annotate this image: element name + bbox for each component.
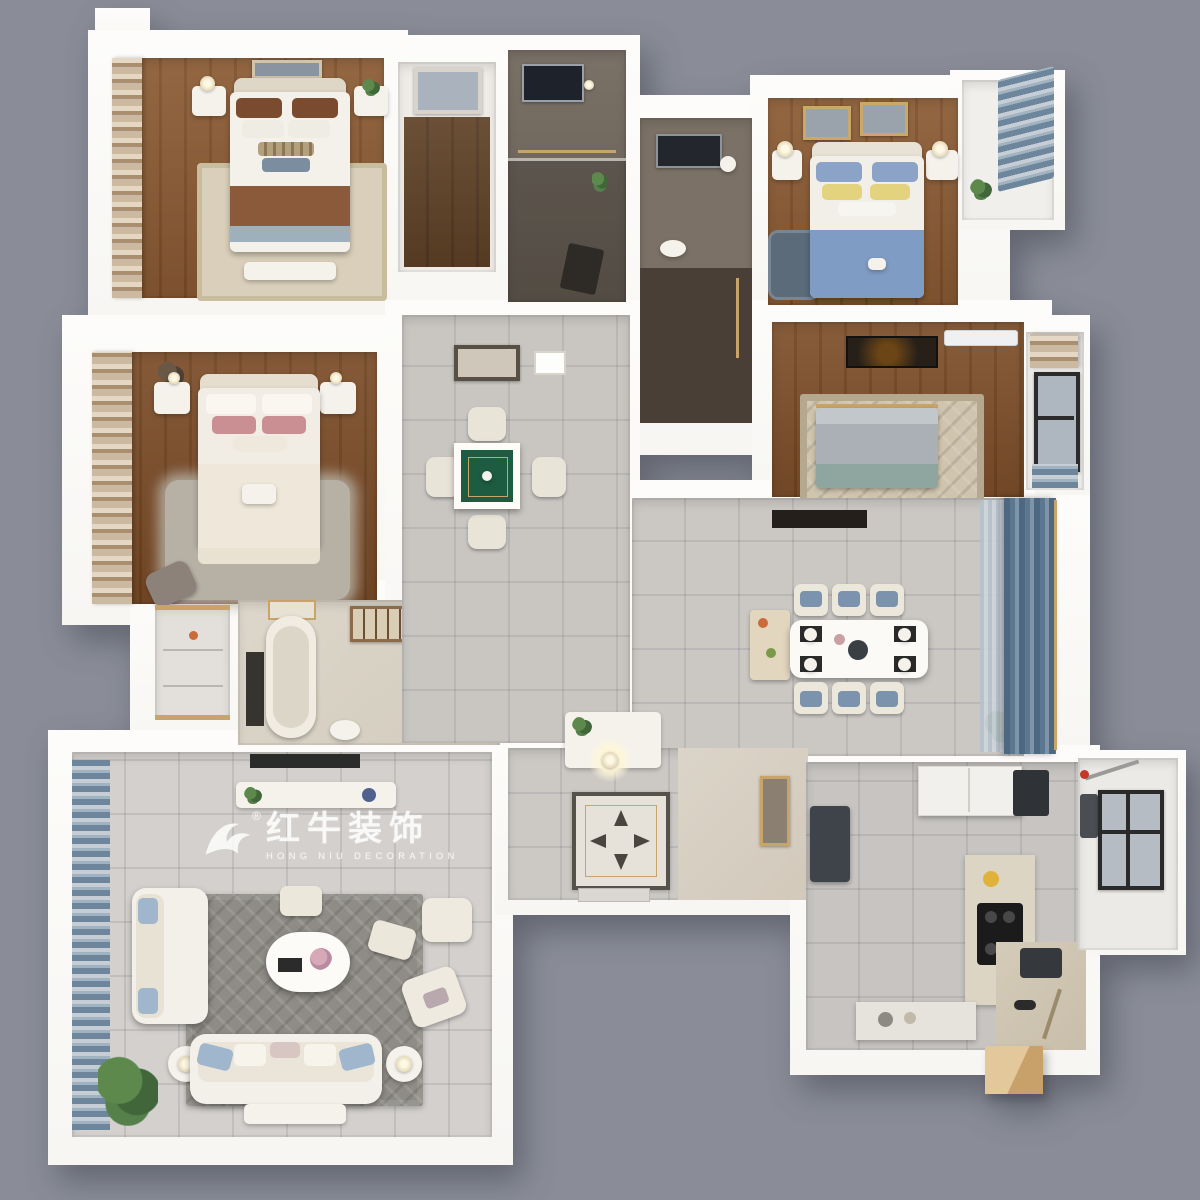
foyer-leaning-picture	[760, 776, 790, 846]
hongniu-logo-icon: ®	[200, 813, 256, 861]
kitchen-fridge	[810, 806, 850, 882]
bedroom2-bay-curtain	[998, 66, 1054, 192]
dining-centerpiece	[848, 640, 868, 660]
bedroom4-breakfast-tray	[242, 484, 276, 504]
hall-wall-art	[454, 345, 520, 381]
dining-chair-cushion	[876, 691, 898, 707]
bedroom2-open-book	[868, 258, 886, 270]
balcony-broom-tip	[1080, 770, 1089, 779]
dining-serving-cart	[750, 610, 790, 680]
mahjong-chair-bottom	[468, 515, 506, 549]
living-ottoman-top	[280, 886, 322, 916]
foyer-medallion-arrow-s	[614, 854, 628, 870]
bath3-window	[350, 606, 406, 642]
brand-name-english: HONG NIU DECORATION	[266, 851, 459, 862]
watermark: ® 红牛装饰 HONG NIU DECORATION	[200, 812, 459, 862]
bedroom1-blanket-brown	[230, 186, 350, 230]
bedroom1-flowers	[362, 78, 380, 96]
bath2-toilet	[660, 240, 686, 257]
kitchen-jar	[904, 1012, 916, 1024]
bath2-shower-pole	[736, 278, 739, 358]
apartment-3d-floorplan	[0, 0, 1200, 1200]
balcony-window	[1098, 790, 1164, 890]
living-coffee-table-flowers	[310, 948, 332, 970]
living-floor-plant	[98, 1050, 158, 1126]
bath2-mirror	[656, 134, 722, 168]
floorplan-stage: ® 红牛装饰 HONG NIU DECORATION	[0, 0, 1200, 1200]
dining-chair-bottom-2	[832, 682, 866, 714]
bedroom4-pillow-round	[232, 436, 288, 452]
bedroom4-sconce-left	[168, 372, 180, 384]
living-sofa-left-pillow-blue1	[138, 898, 158, 924]
living-sofa-main-pillow-pink	[270, 1042, 300, 1058]
bedroom2-art-left	[803, 106, 851, 140]
bedroom2-pillow-yellow-left	[822, 184, 862, 200]
kitchen-kettle	[878, 1012, 893, 1027]
storage-shelf-line2	[163, 685, 223, 687]
room-balcony	[1078, 758, 1178, 950]
room-bedroom3	[772, 322, 1024, 497]
closet-wood-floor	[404, 117, 490, 267]
room-central-hall	[402, 315, 630, 743]
mahjong-table-center-dot	[482, 471, 492, 481]
watermark-text: 红牛装饰 HONG NIU DECORATION	[266, 812, 459, 862]
balcony-window-hbar	[1102, 830, 1160, 834]
room-closet	[398, 62, 496, 272]
balcony-broom-handle	[1085, 759, 1139, 780]
brand-name-chinese: 红牛装饰	[266, 812, 430, 846]
bedroom2-art-right	[860, 102, 908, 136]
dining-chair-cushion	[876, 591, 898, 607]
bedroom4-nightstand-right	[320, 382, 356, 414]
bath1-sconce	[584, 80, 594, 90]
kitchen-fruit-bowl	[983, 871, 999, 887]
dining-cart-food2	[766, 648, 776, 658]
bedroom1-pillow-blue	[262, 158, 310, 172]
dining-bay-gold-trim	[1054, 500, 1057, 750]
living-armchair-1	[422, 898, 472, 942]
bedroom3-ac-unit	[944, 330, 1018, 346]
living-sofa-main-pillow-white	[234, 1044, 266, 1066]
room-dining	[632, 498, 1024, 756]
storage-shelf-line1	[163, 649, 223, 651]
living-sofa-main-pillow-white2	[304, 1044, 336, 1066]
dining-chair-cushion	[838, 591, 860, 607]
bedroom2-lamp-right	[932, 141, 948, 157]
bath3-bathtub-inner	[273, 626, 309, 728]
bedroom3-tv	[846, 336, 938, 368]
room-bath2	[640, 118, 752, 423]
bedroom2-pillow-blue-left	[816, 162, 862, 182]
living-sofa-left-pillow-blue2	[138, 988, 158, 1014]
storage-accent-item	[189, 631, 198, 640]
room-bedroom1	[112, 58, 384, 298]
bedroom4-blanket-cream	[198, 464, 320, 548]
bedroom1-pillow-white-right	[288, 120, 330, 138]
bedroom1-blanket-blue-fold	[230, 226, 350, 242]
bedroom2-bay-flowers	[970, 178, 992, 200]
kitchen-burner-2	[1003, 911, 1015, 923]
bedroom2-pillow-yellow-right	[870, 184, 910, 200]
bedroom1-lamp-left	[200, 76, 215, 91]
living-console-back	[244, 1104, 346, 1124]
kitchen-counter-bottom	[856, 1002, 976, 1040]
kitchen-shoes	[1014, 1000, 1036, 1010]
bedroom1-pillow-brown-right	[292, 98, 338, 118]
registered-mark: ®	[252, 809, 261, 823]
storage-gold-trim-top	[155, 605, 230, 610]
dining-chair-top-3	[870, 584, 904, 616]
bedroom4-pillow-pink-left	[212, 416, 256, 434]
room-bedroom2-bay	[962, 80, 1054, 220]
dining-chair-cushion	[838, 691, 860, 707]
foyer-entry-threshold	[578, 888, 650, 902]
mahjong-chair-top	[468, 407, 506, 441]
bedroom3-bay-window-bar	[1036, 416, 1074, 420]
bedroom3-blanket-teal	[816, 464, 938, 488]
dining-plate-3	[804, 658, 817, 671]
room-foyer	[508, 748, 808, 900]
bedroom3-pillow-strip	[816, 408, 938, 424]
living-tv	[250, 754, 360, 768]
mahjong-table	[454, 443, 520, 509]
kitchen-cabinet-divider	[968, 768, 970, 812]
living-console-vase	[362, 788, 376, 802]
bedroom1-wall-art	[252, 60, 322, 79]
storage-gold-trim-bottom	[155, 715, 230, 720]
dining-chair-cushion	[800, 591, 822, 607]
dining-chair-top-2	[832, 584, 866, 616]
room-storage	[155, 605, 230, 720]
dining-bay-blue-curtain	[1004, 498, 1056, 754]
bedroom2-duvet-blue	[810, 230, 924, 298]
kitchen-burner-1	[985, 911, 997, 923]
room-bath1	[508, 50, 626, 302]
bath1-mirror	[522, 64, 584, 102]
bedroom4-sconce-right	[330, 372, 342, 384]
living-coffee-table-book	[278, 958, 302, 972]
bath3-vanity-mirror	[246, 652, 264, 726]
foyer-medallion-arrow-n	[614, 810, 628, 826]
bedroom1-pillow-stripe	[258, 142, 314, 156]
foyer-medallion	[572, 792, 670, 890]
bedroom4-pillow-white-left	[206, 394, 256, 414]
kitchen-pantry-floor	[996, 942, 1086, 1050]
bath3-toilet	[330, 720, 360, 740]
dining-plate-4	[898, 658, 911, 671]
room-bedroom2	[768, 98, 958, 305]
bedroom4-nightstand-left	[154, 382, 190, 414]
bedroom2-pillow-blue-right	[872, 162, 918, 182]
bedroom1-pillow-brown-left	[236, 98, 282, 118]
mahjong-chair-right	[532, 457, 566, 497]
bedroom3-bay-window	[1034, 372, 1080, 472]
kitchen-washer	[1020, 948, 1062, 978]
foyer-console-plant	[572, 716, 592, 736]
dining-bay-sheer-curtain	[980, 500, 1006, 752]
room-bedroom4	[92, 352, 377, 604]
bedroom4-pillow-white-right	[262, 394, 312, 414]
bedroom4-bed-fold	[198, 548, 320, 564]
dining-tv-niche	[772, 510, 867, 528]
bedroom2-pillow-white	[838, 202, 896, 216]
dining-chair-top-1	[794, 584, 828, 616]
dining-cart-food1	[758, 618, 768, 628]
closet-skylight-window	[414, 68, 482, 114]
bedroom3-bay-curtain-top	[1030, 334, 1078, 368]
bedroom4-curtains	[92, 352, 132, 604]
bedroom3-bay-curtain-bottom	[1032, 464, 1078, 488]
bedroom1-bench	[244, 262, 336, 280]
kitchen-broom-lean	[1042, 989, 1062, 1040]
kitchen-upper-cabinets	[918, 766, 1022, 816]
dining-chair-bottom-1	[794, 682, 828, 714]
balcony-window-vbar	[1126, 794, 1130, 886]
foyer-medallion-arrow-e	[634, 834, 650, 848]
dining-chair-bottom-3	[870, 682, 904, 714]
bedroom1-curtains	[112, 58, 142, 298]
bedroom4-pillow-pink-right	[262, 416, 306, 434]
dining-plate-1	[804, 628, 817, 641]
room-bedroom3-bay	[1026, 332, 1084, 490]
hall-door-leaf	[534, 351, 566, 375]
dining-dessert	[834, 634, 845, 645]
foyer-medallion-arrow-w	[590, 834, 606, 848]
bedroom1-pillow-white-left	[242, 120, 284, 138]
bath2-sink	[720, 156, 736, 172]
dining-chair-cushion	[800, 691, 822, 707]
bedroom2-lamp-left	[777, 141, 793, 157]
kitchen-tall-unit	[1013, 770, 1049, 816]
foyer-chandelier	[602, 752, 618, 768]
balcony-water-heater	[1080, 794, 1098, 838]
living-lamp-right	[396, 1056, 412, 1072]
bath1-gold-rail	[518, 150, 616, 153]
living-console-plant	[244, 786, 262, 804]
bath1-plant	[592, 170, 608, 192]
room-kitchen	[806, 762, 1086, 1050]
dining-plate-2	[898, 628, 911, 641]
kitchen-door-step	[985, 1046, 1043, 1094]
